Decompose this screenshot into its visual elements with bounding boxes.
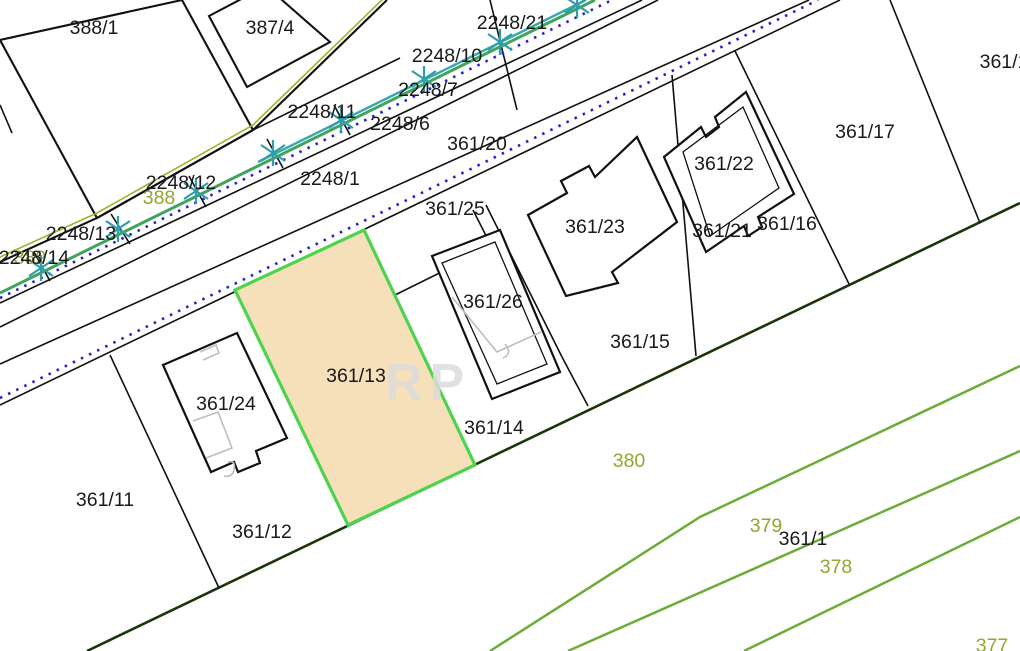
- watermark-text: RP: [385, 354, 471, 412]
- boundary-361-14-361-15: [562, 357, 588, 406]
- parcel-label-361-1: 361/1: [779, 528, 828, 550]
- parcel-label-388-1: 388/1: [70, 17, 119, 39]
- parcel-label-380: 380: [613, 450, 646, 472]
- parcel-label-377: 377: [976, 635, 1009, 651]
- parcel-label-361-17: 361/17: [835, 121, 895, 143]
- parcel-label-378: 378: [820, 556, 853, 578]
- field-boundary-lines: [490, 366, 1020, 651]
- parcel-label-2248-12: 2248/12: [146, 172, 217, 194]
- parcel-label-2248-14: 2248/14: [0, 247, 69, 269]
- parcel-label-2248-11: 2248/11: [287, 101, 356, 123]
- parcel-label-361-13: 361/13: [326, 365, 386, 387]
- parcel-label-2248-7: 2248/7: [398, 79, 458, 101]
- parcel-label-361-11: 361/11: [76, 489, 134, 511]
- field-line-380: [490, 366, 1020, 651]
- boundary-361-17-361-1: [890, 0, 980, 223]
- parcel-label-361-15: 361/15: [610, 331, 670, 353]
- edge-boundary-tick: [0, 105, 12, 133]
- parcel-label-361-24: 361/24: [196, 393, 256, 415]
- parcel-label-2248-13: 2248/13: [46, 223, 117, 245]
- parcel-label-387-4: 387/4: [246, 17, 295, 39]
- parcel-label-361-1: 361/1: [980, 51, 1020, 73]
- parcel-label-361-21: 361/21: [692, 220, 752, 242]
- parcel-label-379: 379: [750, 515, 783, 537]
- utility-dotted-line-upper: [0, 0, 612, 298]
- cadastral-map[interactable]: RP 389388380379378377 388/1387/42248/212…: [0, 0, 1020, 651]
- cadastral-map-viewport[interactable]: RP 389388380379378377 388/1387/42248/212…: [0, 0, 1020, 651]
- parcel-label-361-16: 361/16: [757, 213, 817, 235]
- parcel-label-2248-10: 2248/10: [412, 45, 483, 67]
- parcel-label-361-12: 361/12: [232, 521, 292, 543]
- parcel-label-361-25: 361/25: [425, 198, 485, 220]
- parcel-label-361-23: 361/23: [565, 216, 625, 238]
- parcel-label-2248-21: 2248/21: [477, 12, 548, 34]
- parcel-label-361-20: 361/20: [447, 133, 507, 155]
- parcel-label-361-26: 361/26: [463, 291, 523, 313]
- parcel-label-2248-1: 2248/1: [300, 168, 360, 190]
- parcel-label-361-14: 361/14: [464, 417, 524, 439]
- parcel-label-361-22: 361/22: [694, 153, 754, 175]
- parcel-label-2248-6: 2248/6: [370, 113, 430, 135]
